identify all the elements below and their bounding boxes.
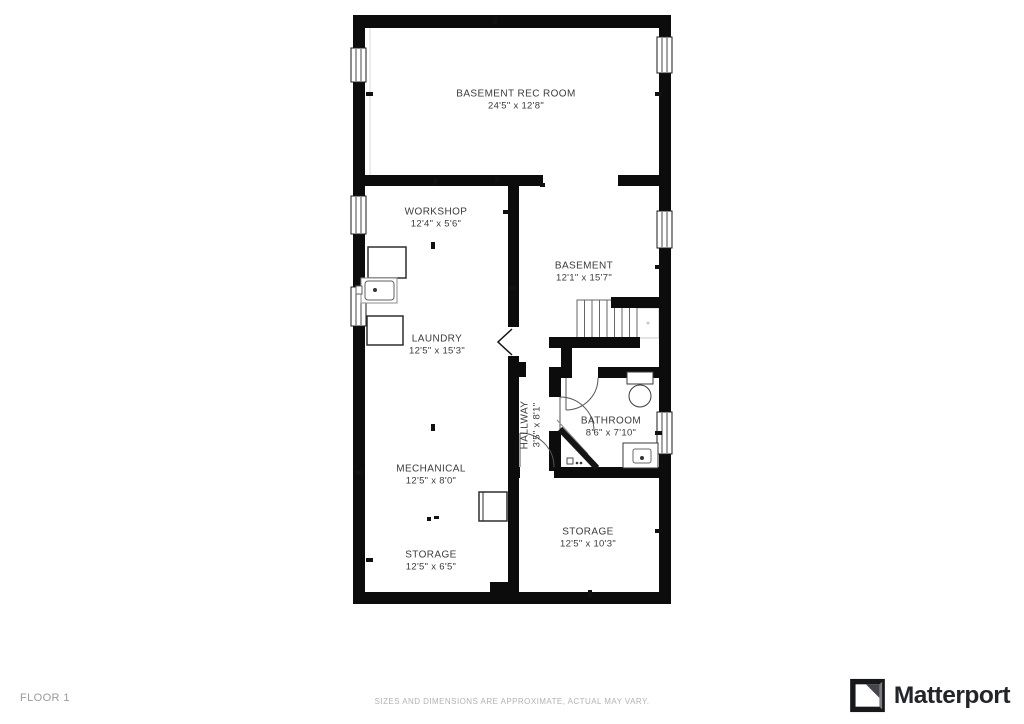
fixture-dot xyxy=(640,456,644,460)
dimension-tick xyxy=(655,529,662,533)
dimension-tick xyxy=(503,210,510,214)
floor-plan-canvas xyxy=(0,0,1024,724)
matterport-wordmark: Matterport xyxy=(894,682,1010,710)
dimension-tick xyxy=(655,265,662,269)
wall xyxy=(353,15,671,28)
fixture xyxy=(367,316,403,345)
fixture-dot xyxy=(576,462,579,465)
dimension-tick xyxy=(431,242,435,249)
matterport-brand: Matterport xyxy=(849,677,1010,714)
window xyxy=(351,48,366,82)
fixture-dot xyxy=(373,288,377,292)
dimension-tick xyxy=(588,590,592,597)
wall xyxy=(549,431,561,471)
dimension-tick xyxy=(493,17,497,24)
dimension-tick xyxy=(366,92,373,96)
matterport-logo-icon xyxy=(849,677,886,714)
fixture xyxy=(356,286,362,294)
toilet-bowl xyxy=(629,385,651,407)
dimension-tick xyxy=(433,178,437,185)
wall xyxy=(618,175,659,186)
wall xyxy=(554,467,659,478)
wall xyxy=(490,582,518,604)
wall xyxy=(508,175,519,327)
window xyxy=(351,196,366,234)
fixture xyxy=(627,372,653,384)
wall xyxy=(508,356,519,604)
door-swing-arc xyxy=(520,433,554,467)
wall xyxy=(659,15,671,604)
dimension-tick xyxy=(366,558,373,562)
fixture xyxy=(368,247,406,278)
dimension-tick xyxy=(509,286,516,290)
dimension-tick xyxy=(655,92,662,96)
dimension-tick xyxy=(434,516,439,519)
shower-wall xyxy=(560,429,597,468)
door-swing-arc xyxy=(560,397,594,431)
shower-edge xyxy=(557,420,588,454)
door-chevron xyxy=(498,329,512,355)
window xyxy=(657,211,672,248)
stair-landing-dot xyxy=(647,322,650,325)
fixture xyxy=(567,458,573,464)
dimension-tick xyxy=(495,177,499,182)
wall xyxy=(611,297,659,308)
dimension-tick xyxy=(356,471,363,475)
window xyxy=(657,37,672,73)
dimension-tick xyxy=(427,517,431,521)
wall xyxy=(515,362,526,377)
wall xyxy=(508,467,520,478)
wall xyxy=(549,378,561,397)
fixture xyxy=(365,281,394,300)
dimension-tick xyxy=(431,424,435,431)
dimension-tick xyxy=(540,183,545,187)
floor-plan-page: BASEMENT REC ROOM24'5" x 12'8"WORKSHOP12… xyxy=(0,0,1024,724)
dimension-tick xyxy=(655,431,662,435)
fixture-dot xyxy=(580,462,583,465)
wall xyxy=(549,367,566,378)
